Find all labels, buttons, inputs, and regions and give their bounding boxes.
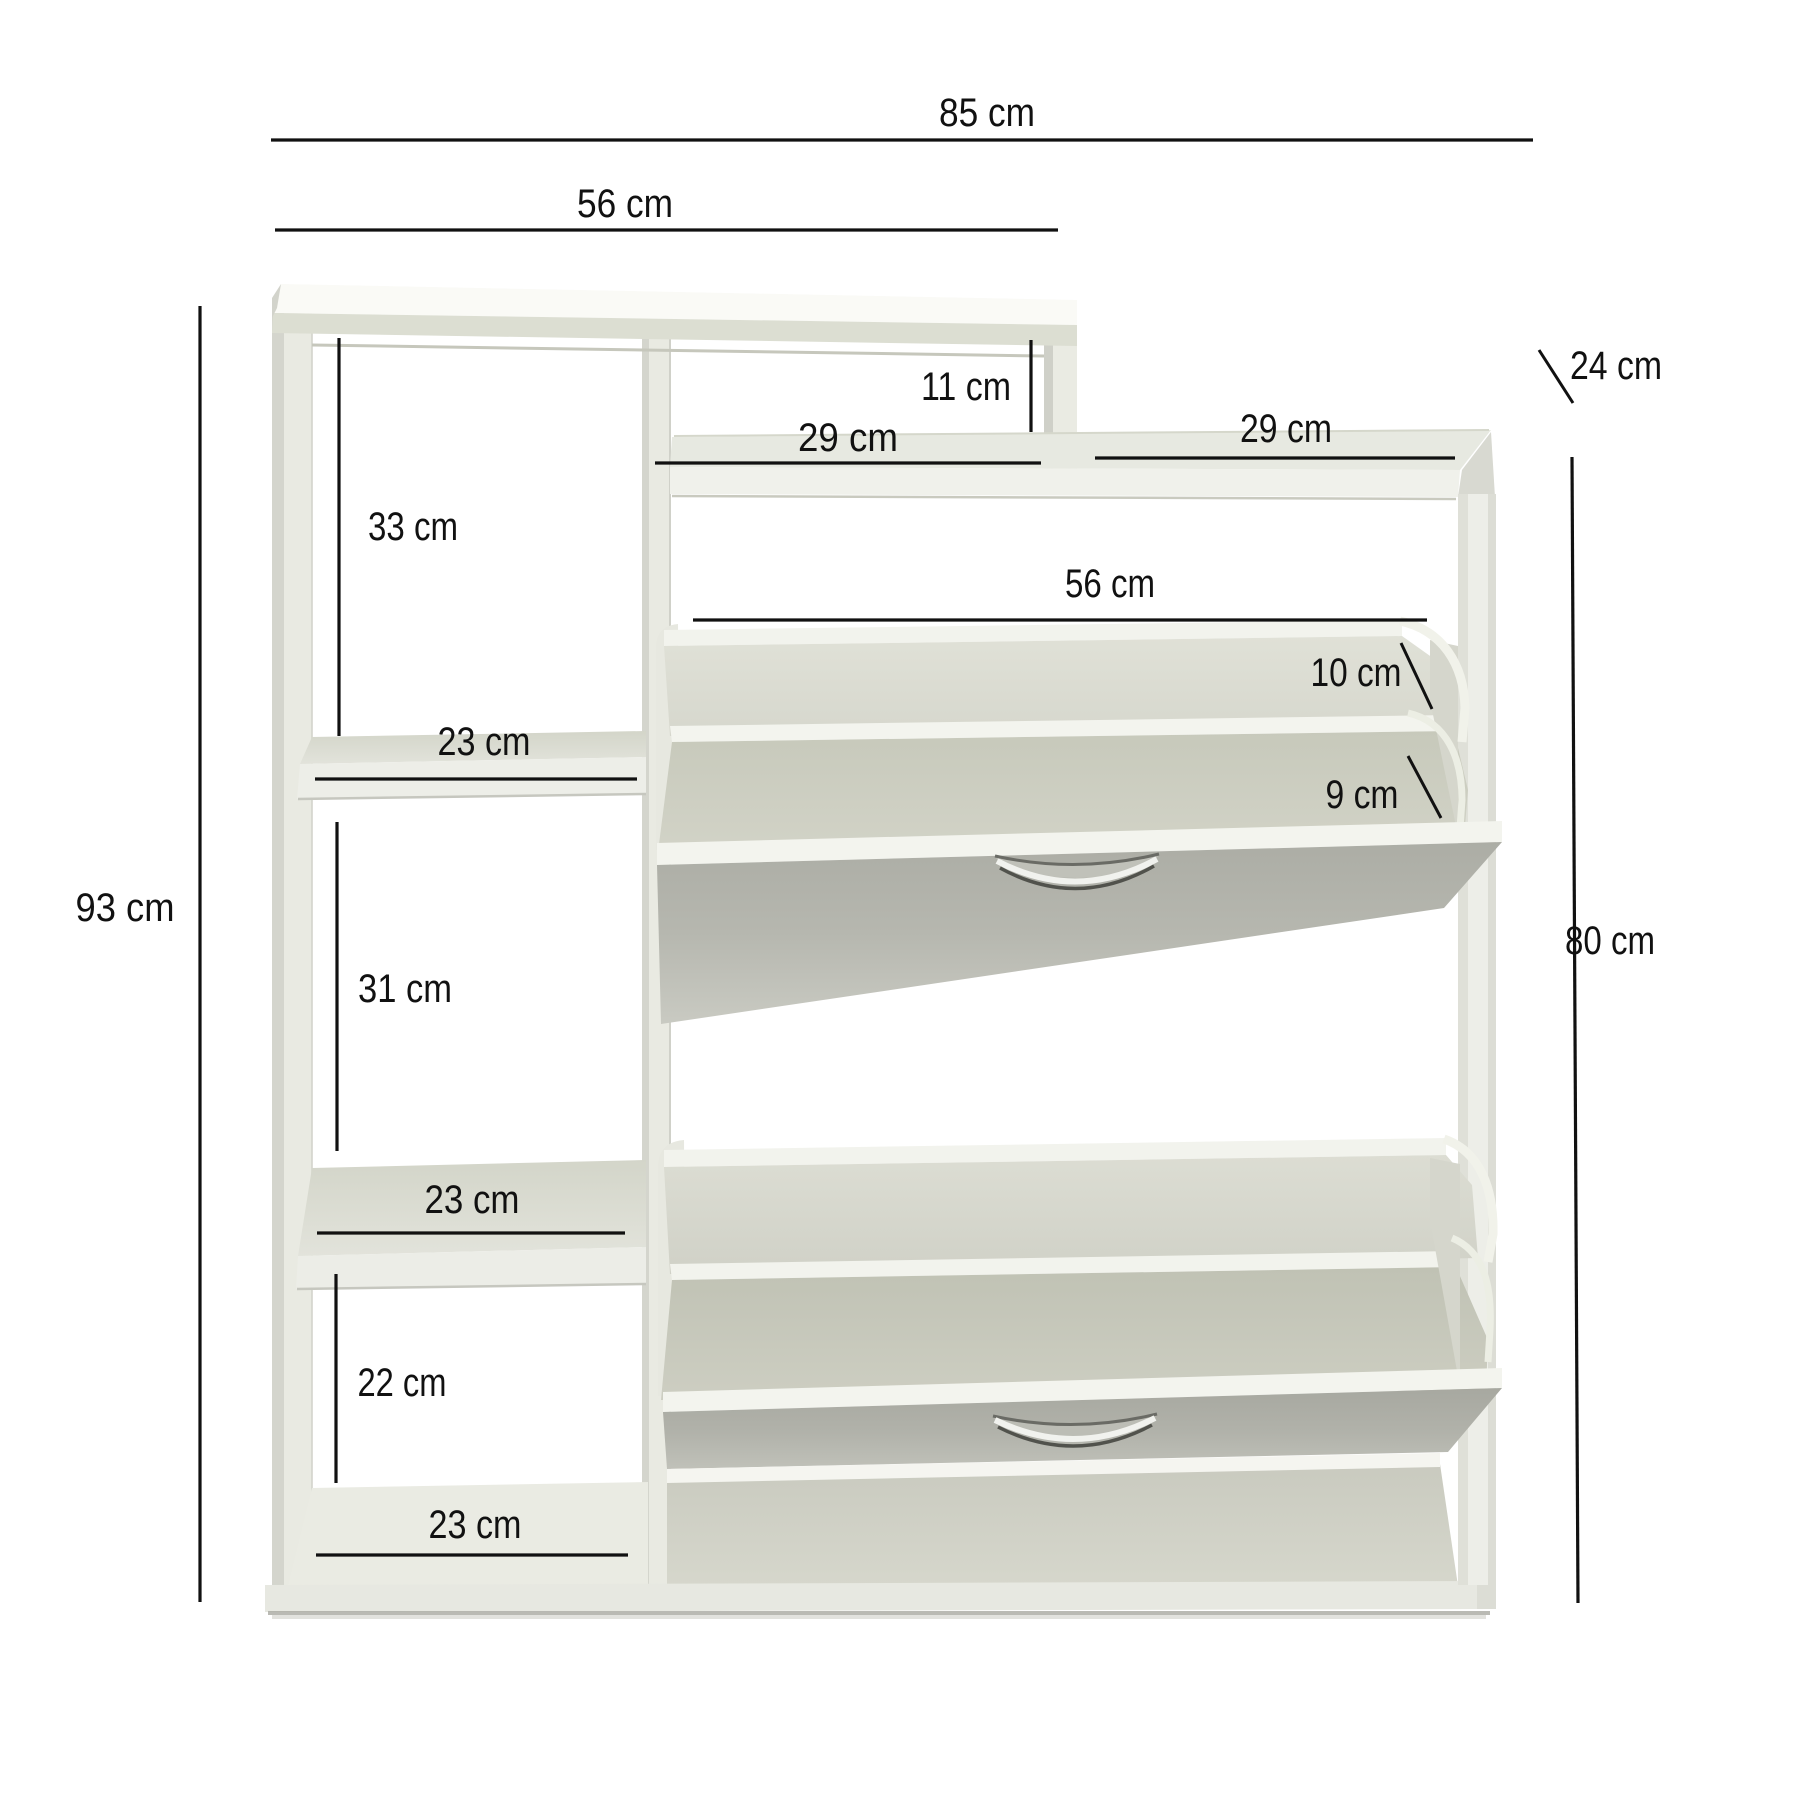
svg-text:85 cm: 85 cm [939,91,1035,135]
svg-text:29 cm: 29 cm [798,416,898,460]
svg-text:29 cm: 29 cm [1240,407,1332,451]
svg-text:9 cm: 9 cm [1326,773,1399,817]
svg-text:31 cm: 31 cm [358,967,452,1011]
svg-text:10 cm: 10 cm [1311,651,1402,695]
svg-text:33 cm: 33 cm [368,505,458,549]
svg-text:23 cm: 23 cm [429,1503,522,1547]
svg-text:56 cm: 56 cm [577,182,673,226]
svg-text:24 cm: 24 cm [1570,344,1662,388]
svg-text:56 cm: 56 cm [1065,562,1155,606]
svg-text:11 cm: 11 cm [921,365,1011,409]
svg-text:93 cm: 93 cm [76,886,175,930]
svg-text:23 cm: 23 cm [425,1178,520,1222]
svg-text:23 cm: 23 cm [438,720,531,764]
svg-text:22 cm: 22 cm [358,1361,447,1405]
svg-text:80 cm: 80 cm [1565,919,1655,963]
